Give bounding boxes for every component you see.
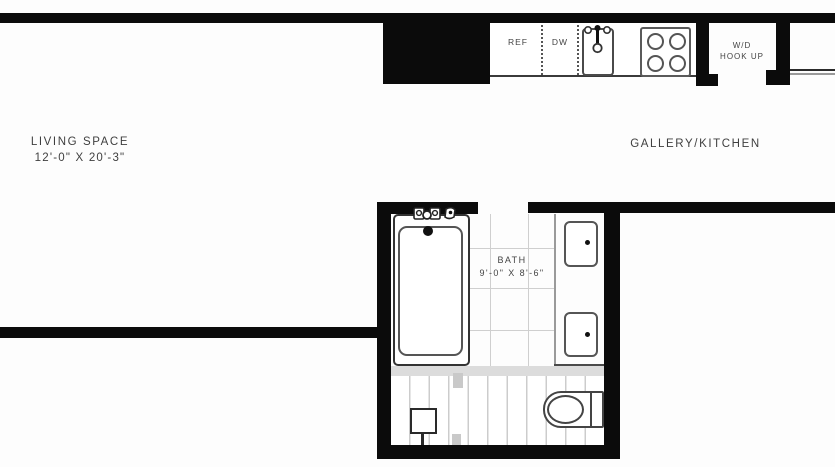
bath-bottom-wall	[391, 445, 604, 459]
vanity-counter-edge	[554, 214, 556, 366]
wd-line1: W/D	[733, 41, 752, 50]
gallery-kitchen-name: GALLERY/KITCHEN	[630, 138, 761, 150]
floor-mark	[453, 373, 463, 388]
vanity-sink-upper-icon	[564, 221, 598, 267]
tub-faucet-icon	[408, 203, 460, 239]
bath-label: BATH 9'-0" X 8'-6"	[462, 254, 562, 280]
counter-divider-ref-dw	[541, 25, 543, 75]
bath-tile-line	[470, 248, 554, 249]
gallery-kitchen-label: GALLERY/KITCHEN	[618, 138, 773, 150]
sink-drain-dot	[585, 332, 590, 337]
shower-fixture-icon	[410, 408, 437, 434]
wd-closet-right-wall-foot	[766, 70, 790, 85]
refrigerator-label: REF	[498, 37, 538, 47]
entry-opening-line-dark	[790, 69, 835, 71]
burner-icon	[669, 33, 686, 50]
bath-left-wall	[377, 202, 391, 459]
bath-tile-line	[490, 214, 491, 366]
bathtub-basin	[398, 226, 463, 356]
bath-tile-line	[528, 214, 529, 366]
bath-tile-line	[470, 288, 554, 289]
living-space-dimensions: 12'-0" X 20'-3"	[16, 152, 144, 164]
bath-name: BATH	[498, 255, 527, 265]
bath-floor-threshold	[391, 366, 604, 376]
wd-line2: HOOK UP	[720, 52, 764, 61]
kitchen-entry-wall-block	[383, 13, 490, 84]
floor-mark	[452, 434, 461, 445]
wd-hookup-label: W/D HOOK UP	[711, 40, 773, 62]
vanity-sink-lower-icon	[564, 312, 598, 357]
living-space-name: LIVING SPACE	[31, 136, 129, 148]
toilet-bowl	[547, 395, 584, 424]
toilet-tank-divider	[590, 392, 592, 427]
wd-closet-left-wall-foot	[696, 74, 718, 86]
bath-top-wall-right	[528, 202, 835, 213]
dishwasher-label: DW	[545, 37, 575, 47]
shower-fixture-stem	[421, 434, 424, 445]
sink-drain-dot	[585, 240, 590, 245]
burner-icon	[647, 55, 664, 72]
counter-divider-dw-sink	[577, 25, 579, 75]
burner-icon	[647, 33, 664, 50]
bath-dimensions: 9'-0" X 8'-6"	[479, 268, 544, 278]
entry-opening-line-gray	[790, 73, 835, 75]
burner-icon	[669, 55, 686, 72]
living-space-label: LIVING SPACE 12'-0" X 20'-3"	[16, 136, 144, 164]
kitchen-faucet-icon	[580, 22, 618, 54]
bath-right-wall	[604, 213, 620, 459]
floor-plan: REF DW W/D HOOK UP LIVING SPACE 12'-0" X…	[0, 0, 835, 467]
bath-tile-line	[470, 330, 554, 331]
living-lower-wall	[0, 327, 391, 338]
stove-icon	[640, 27, 691, 77]
